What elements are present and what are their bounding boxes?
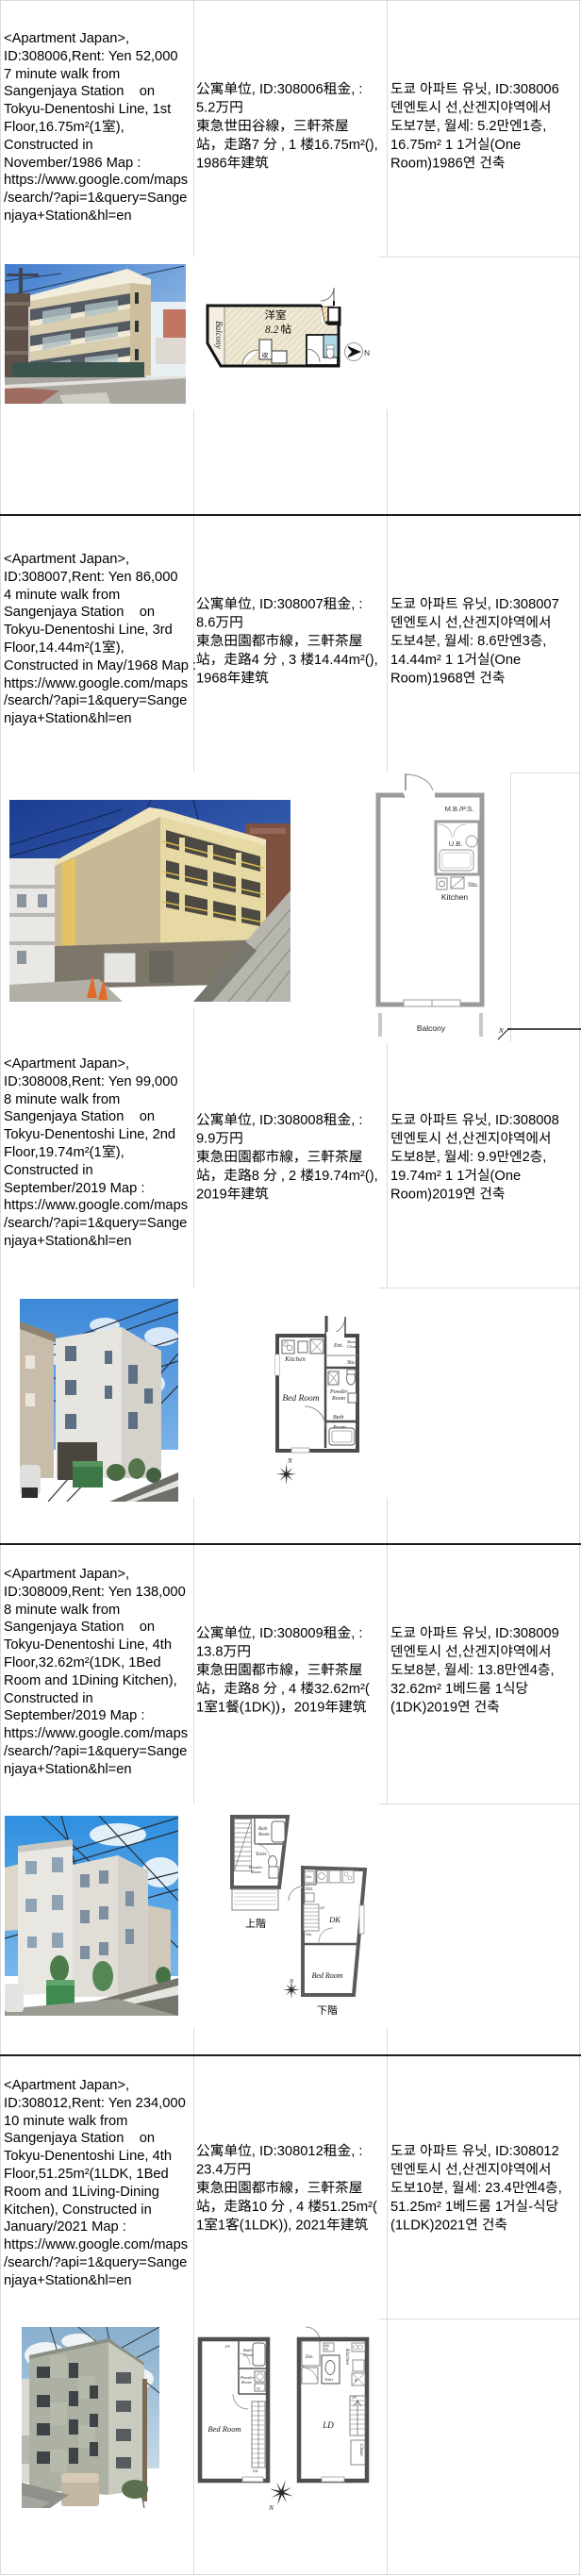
svg-text:2019: 2019 <box>196 1187 227 1202</box>
svg-text:M.B./P.S.: M.B./P.S. <box>445 805 474 813</box>
svg-text:8: 8 <box>252 1681 263 1696</box>
svg-text:, ID:308009: , ID:308009 <box>488 1626 559 1641</box>
svg-text:16.75m² 1 1: 16.75m² 1 1 <box>390 138 464 153</box>
svg-text:Balcony: Balcony <box>417 1023 446 1033</box>
svg-text:32.62m²(: 32.62m²( <box>314 1681 370 1696</box>
svg-text:Toilet: Toilet <box>324 2377 334 2382</box>
svg-text:,: , <box>550 1663 554 1678</box>
svg-text:: 8.6: : 8.6 <box>470 634 497 649</box>
svg-text:Bed Room: Bed Room <box>282 1394 319 1404</box>
svg-text:, 3: , 3 <box>277 653 301 668</box>
svg-text:Room: Room <box>331 1396 346 1402</box>
svg-text:8.6: 8.6 <box>196 616 215 631</box>
svg-text:, ID:308009: , ID:308009 <box>252 1626 324 1641</box>
svg-text:Room)2019: Room)2019 <box>390 1187 463 1202</box>
svg-text:51.25m²(: 51.25m²( <box>322 2199 377 2214</box>
svg-text:1: 1 <box>491 1681 503 1696</box>
svg-text:2019: 2019 <box>294 1700 325 1715</box>
svg-text:1: 1 <box>491 2199 503 2214</box>
svg-text:1: 1 <box>218 2218 225 2233</box>
svg-text:51.25m² 1: 51.25m² 1 <box>390 2199 453 2214</box>
svg-text:Bath: Bath <box>333 1415 343 1421</box>
svg-text:, ID:308006: , ID:308006 <box>488 82 559 97</box>
svg-text:1968: 1968 <box>196 672 227 687</box>
svg-text:, ID:308008: , ID:308008 <box>252 1113 324 1128</box>
svg-text:1: 1 <box>196 1700 204 1715</box>
svg-text:Kitchen: Kitchen <box>441 892 469 902</box>
svg-text:10: 10 <box>252 2199 271 2214</box>
svg-text:Ent.: Ent. <box>305 2355 313 2360</box>
svg-text:Closet: Closet <box>347 1344 358 1349</box>
svg-text:4: 4 <box>416 634 423 649</box>
svg-text:, ID:308012: , ID:308012 <box>488 2144 559 2159</box>
svg-text:Room: Room <box>257 1833 270 1837</box>
svg-text:14.44m²(),: 14.44m²(), <box>314 653 378 668</box>
svg-text:Sto.: Sto. <box>347 1360 356 1366</box>
svg-text:Kitchen: Kitchen <box>284 1355 306 1363</box>
svg-text:(One: (One <box>490 138 521 153</box>
svg-text:Ent.: Ent. <box>305 1887 313 1892</box>
svg-text:8: 8 <box>416 1150 423 1165</box>
svg-text:1986: 1986 <box>196 157 227 172</box>
svg-text:: 5.2: : 5.2 <box>470 119 497 134</box>
svg-text:Toilet: Toilet <box>256 1853 267 1857</box>
svg-text:LD: LD <box>322 2420 334 2430</box>
svg-text:Bed Room: Bed Room <box>311 1971 342 1980</box>
svg-text:DN: DN <box>253 2469 258 2473</box>
svg-text:PS: PS <box>324 2348 328 2352</box>
svg-text:13.8: 13.8 <box>196 1644 224 1659</box>
svg-text:(1DK)2019: (1DK)2019 <box>390 1700 457 1715</box>
svg-text:3: 3 <box>522 634 529 649</box>
svg-text:, :: , : <box>351 2144 362 2159</box>
svg-text:,: , <box>436 1663 443 1678</box>
svg-text:8.2: 8.2 <box>265 324 279 336</box>
svg-text:8: 8 <box>416 1663 423 1678</box>
svg-text:N: N <box>268 2503 274 2512</box>
svg-text:, ID:308008: , ID:308008 <box>488 1113 559 1128</box>
svg-text:Bed Room: Bed Room <box>207 2424 241 2434</box>
svg-text:Bath: Bath <box>258 1827 268 1832</box>
svg-text:,: , <box>557 2181 561 2196</box>
svg-text:, :: , : <box>351 82 362 97</box>
svg-text:Room)1986: Room)1986 <box>390 157 463 172</box>
svg-text:(1LDK)2021: (1LDK)2021 <box>390 2218 465 2233</box>
svg-text:Room: Room <box>250 1870 261 1874</box>
svg-text:9.9: 9.9 <box>196 1131 215 1146</box>
svg-text:Closet: Closet <box>358 2444 363 2456</box>
svg-text:Room)1968: Room)1968 <box>390 672 463 687</box>
svg-text:.PS: .PS <box>224 2344 229 2349</box>
svg-text:, 4: , 4 <box>277 1681 301 1696</box>
svg-text:Powder: Powder <box>329 1389 348 1395</box>
svg-text:, ID:308007: , ID:308007 <box>252 597 324 612</box>
svg-text:U.B.: U.B. <box>449 839 463 848</box>
svg-text:,: , <box>457 2162 461 2177</box>
svg-text:,: , <box>444 2181 452 2196</box>
svg-text:16.75m²(),: 16.75m²(), <box>314 138 378 153</box>
svg-text:19.74m² 1 1: 19.74m² 1 1 <box>390 1169 464 1184</box>
svg-text:,: , <box>542 119 546 134</box>
svg-text:Balcony: Balcony <box>214 321 224 349</box>
svg-text:: 9.9: : 9.9 <box>470 1150 497 1165</box>
svg-text:,: , <box>457 101 461 116</box>
svg-text:19.74m²(),: 19.74m²(), <box>314 1169 378 1184</box>
svg-text:, 2: , 2 <box>277 1169 301 1184</box>
svg-text:N: N <box>364 348 370 357</box>
svg-text:, :: , : <box>351 1626 362 1641</box>
svg-text:(One: (One <box>490 1169 521 1184</box>
svg-text:5.2: 5.2 <box>196 101 215 116</box>
svg-text:Room: Room <box>241 2380 252 2385</box>
svg-text:Kitchen: Kitchen <box>344 2348 350 2365</box>
svg-text:7: 7 <box>416 119 423 134</box>
svg-text:,: , <box>436 119 443 134</box>
svg-text:23.4: 23.4 <box>196 2162 224 2177</box>
svg-text:W: W <box>257 2386 260 2391</box>
svg-text:,: , <box>457 616 461 631</box>
svg-text:Sto.: Sto. <box>306 1932 312 1936</box>
svg-text:, ID:308007: , ID:308007 <box>488 597 559 612</box>
svg-text:, ID:308006: , ID:308006 <box>252 82 324 97</box>
svg-text:,: , <box>542 634 546 649</box>
svg-text:DK: DK <box>328 1915 341 1924</box>
svg-text:, :: , : <box>351 597 362 612</box>
svg-text:N: N <box>287 1457 292 1465</box>
svg-text:4: 4 <box>252 653 263 668</box>
svg-text:Ent.: Ent. <box>333 1343 343 1349</box>
svg-text:(1LDK)), 2021: (1LDK)), 2021 <box>240 2218 326 2233</box>
svg-text:1: 1 <box>218 1700 225 1715</box>
svg-text:,: , <box>457 1644 461 1659</box>
svg-text:, ID:308012: , ID:308012 <box>252 2144 324 2159</box>
svg-text:, :: , : <box>351 1113 362 1128</box>
svg-text:2: 2 <box>522 1150 529 1165</box>
svg-text:1: 1 <box>522 119 529 134</box>
svg-text:32.62m² 1: 32.62m² 1 <box>390 1681 453 1696</box>
svg-text:,: , <box>542 1150 546 1165</box>
svg-text:UP: UP <box>320 1906 325 1910</box>
svg-text:4: 4 <box>530 1663 538 1678</box>
svg-text:,: , <box>457 1131 461 1146</box>
svg-text:(One: (One <box>490 653 521 668</box>
svg-text:,: , <box>436 1150 443 1165</box>
svg-text:4: 4 <box>538 2181 545 2196</box>
svg-text:1: 1 <box>196 2218 204 2233</box>
svg-text:-: - <box>528 2199 533 2214</box>
svg-text:: 13.8: : 13.8 <box>470 1663 505 1678</box>
svg-text:UP: UP <box>352 2396 357 2400</box>
svg-text:10: 10 <box>416 2181 431 2196</box>
svg-text:R: R <box>354 2378 357 2383</box>
svg-text:,: , <box>436 634 443 649</box>
svg-text:14.44m² 1 1: 14.44m² 1 1 <box>390 653 464 668</box>
svg-text:, 4: , 4 <box>285 2199 308 2214</box>
svg-text:7: 7 <box>252 138 263 153</box>
svg-text:: 23.4: : 23.4 <box>477 2181 512 2196</box>
svg-text:8: 8 <box>252 1169 263 1184</box>
svg-text:Sto.: Sto. <box>468 882 479 889</box>
svg-text:N: N <box>498 1027 504 1035</box>
svg-text:Sto.: Sto. <box>306 1874 312 1879</box>
svg-text:, 1: , 1 <box>277 138 301 153</box>
svg-text:(1DK)): (1DK)) <box>240 1700 280 1715</box>
